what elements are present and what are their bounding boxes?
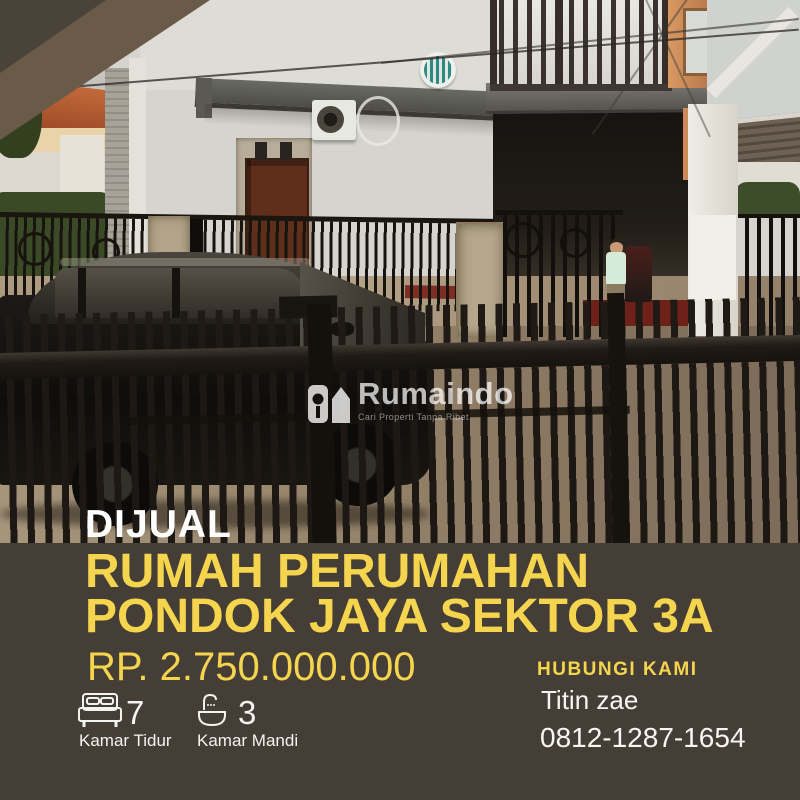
carport-parapet [690,215,736,300]
dijual-badge: DIJUAL [85,503,232,543]
balcony-post [490,0,497,84]
feature-bedrooms [78,693,122,736]
contact-name: Titin zae [541,685,638,716]
bath-icon [196,692,228,730]
listing-price: RP. 2.750.000.000 [87,645,415,690]
car-roof-highlight [60,258,310,266]
gate-ornament [505,222,541,258]
fence-ornament [18,232,52,266]
round-wall-vent-grille [424,56,452,84]
feature-bathrooms [196,692,228,735]
info-panel: RUMAH PERUMAHAN PONDOK JAYA SEKTOR 3A RP… [0,543,800,800]
coiled-cable [356,96,400,146]
gate-ornament [560,228,590,258]
bedroom-label: Kamar Tidur [79,731,172,751]
property-flyer: Rumaindo Cari Properti Tanpa Ribet DIJUA… [0,0,800,800]
person-torso [606,252,626,286]
bedroom-count: 7 [126,694,144,732]
hedge [735,182,800,218]
contact-phone: 0812-1287-1654 [540,722,746,754]
bathroom-label: Kamar Mandi [197,731,298,751]
watermark: Rumaindo Cari Properti Tanpa Ribet [308,377,514,427]
bathroom-count: 3 [238,694,256,732]
ac-fan [317,106,344,133]
contact-heading: HUBUNGI KAMI [537,659,698,681]
house-photo: Rumaindo Cari Properti Tanpa Ribet DIJUA… [0,0,800,543]
bed-icon [78,693,122,731]
watermark-tagline: Cari Properti Tanpa Ribet [358,412,514,422]
door-vent [255,142,267,160]
door-vent [280,142,292,160]
rumaindo-house-key-icon [308,377,350,427]
watermark-brand: Rumaindo [358,377,514,411]
listing-title-line2: PONDOK JAYA SEKTOR 3A [85,589,714,644]
